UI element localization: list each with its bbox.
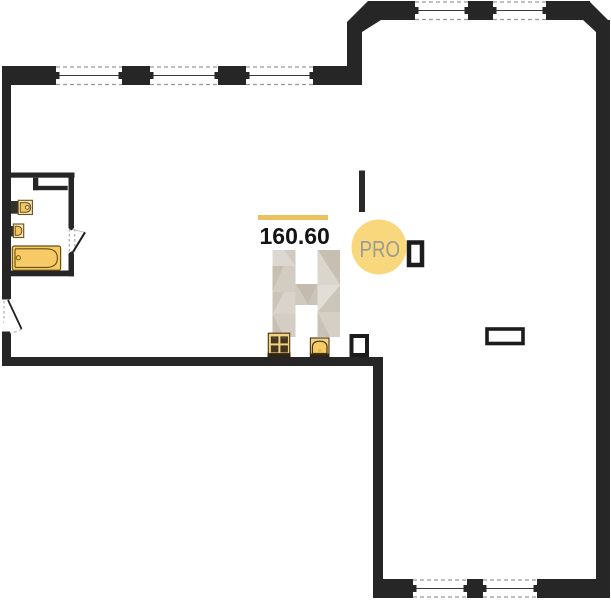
svg-text:PRO: PRO (360, 236, 401, 262)
svg-text:160.60: 160.60 (260, 223, 330, 249)
